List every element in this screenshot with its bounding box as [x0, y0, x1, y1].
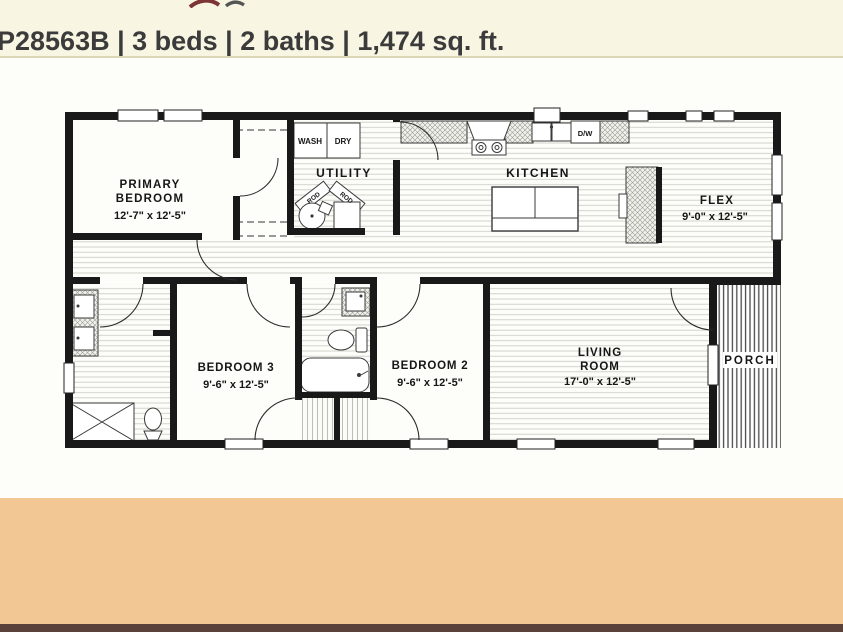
page-title: P28563B | 3 beds | 2 baths | 1,474 sq. f… — [0, 26, 504, 57]
floor-plan: PRIMARY BEDROOM 12'-7" x 12'-5" UTILITY … — [0, 58, 843, 498]
dryer-label: DRY — [335, 137, 352, 146]
dishwasher-label: D/W — [578, 129, 594, 138]
living-room-label2: ROOM — [580, 361, 620, 373]
range-hood-icon — [467, 121, 511, 142]
floor-plan-drawing: PRIMARY BEDROOM 12'-7" x 12'-5" UTILITY … — [0, 58, 843, 498]
bottom-bar — [0, 624, 843, 632]
bedroom2-label: BEDROOM 2 — [392, 360, 469, 372]
double-vanity-icon — [70, 290, 98, 356]
flex-label: FLEX — [700, 195, 734, 207]
toilet-icon — [328, 328, 367, 352]
kitchen-label: KITCHEN — [506, 166, 570, 180]
flex-dims: 9'-0" x 12'-5" — [682, 211, 748, 223]
features-band: all Throughout Cabinets - Frigidaire Sta… — [0, 498, 843, 624]
shower-icon — [70, 403, 134, 441]
porch-label: PORCH — [724, 355, 776, 367]
title-bar: P28563B | 3 beds | 2 baths | 1,474 sq. f… — [0, 0, 843, 58]
washer-label: WASH — [298, 137, 322, 146]
listing-floorplan-page: P28563B | 3 beds | 2 baths | 1,474 sq. f… — [0, 0, 843, 632]
living-room-dims: 17'-0" x 12'-5" — [564, 376, 636, 388]
bedroom2-dims: 9'-6" x 12'-5" — [397, 377, 463, 389]
vanity-icon — [342, 288, 370, 316]
bedroom3-label: BEDROOM 3 — [198, 362, 275, 374]
toilet-icon — [144, 408, 162, 440]
primary-bedroom-label2: BEDROOM — [116, 193, 184, 205]
range-icon — [472, 140, 506, 155]
primary-bedroom-label: PRIMARY — [119, 179, 180, 191]
bathtub-icon — [301, 358, 369, 392]
porch-label-group: PORCH — [723, 352, 777, 368]
kitchen-sink-icon — [532, 123, 571, 141]
bedroom3-dims: 9'-6" x 12'-5" — [203, 379, 269, 391]
utility-label: UTILITY — [316, 166, 372, 180]
cropped-logo-fragment — [188, 0, 248, 8]
kitchen-island-icon — [492, 187, 578, 231]
closet-shelves — [236, 130, 287, 236]
primary-bedroom-dims: 12'-7" x 12'-5" — [114, 210, 186, 222]
living-room-label: LIVING — [578, 347, 622, 359]
